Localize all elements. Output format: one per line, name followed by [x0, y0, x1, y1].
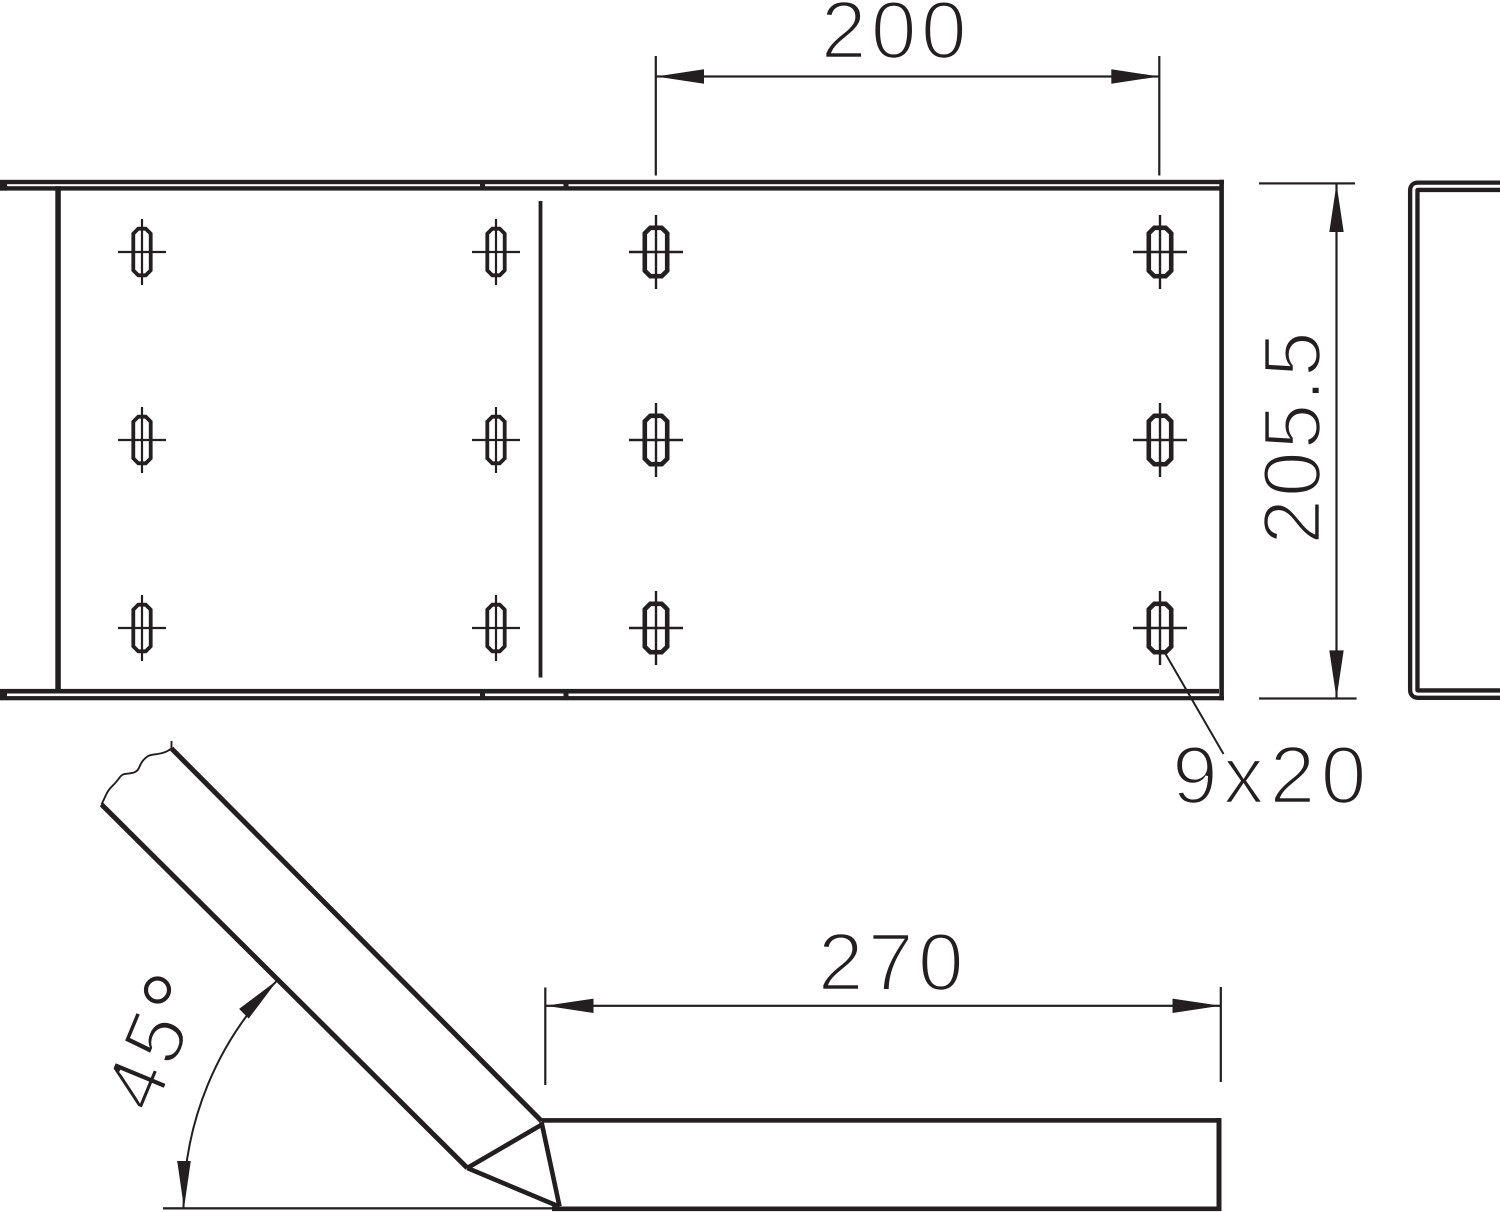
svg-text:200: 200 [821, 0, 971, 76]
svg-text:270: 270 [818, 917, 968, 1008]
svg-text:9x20: 9x20 [1172, 730, 1372, 821]
svg-text:205.5: 205.5 [1247, 329, 1338, 544]
